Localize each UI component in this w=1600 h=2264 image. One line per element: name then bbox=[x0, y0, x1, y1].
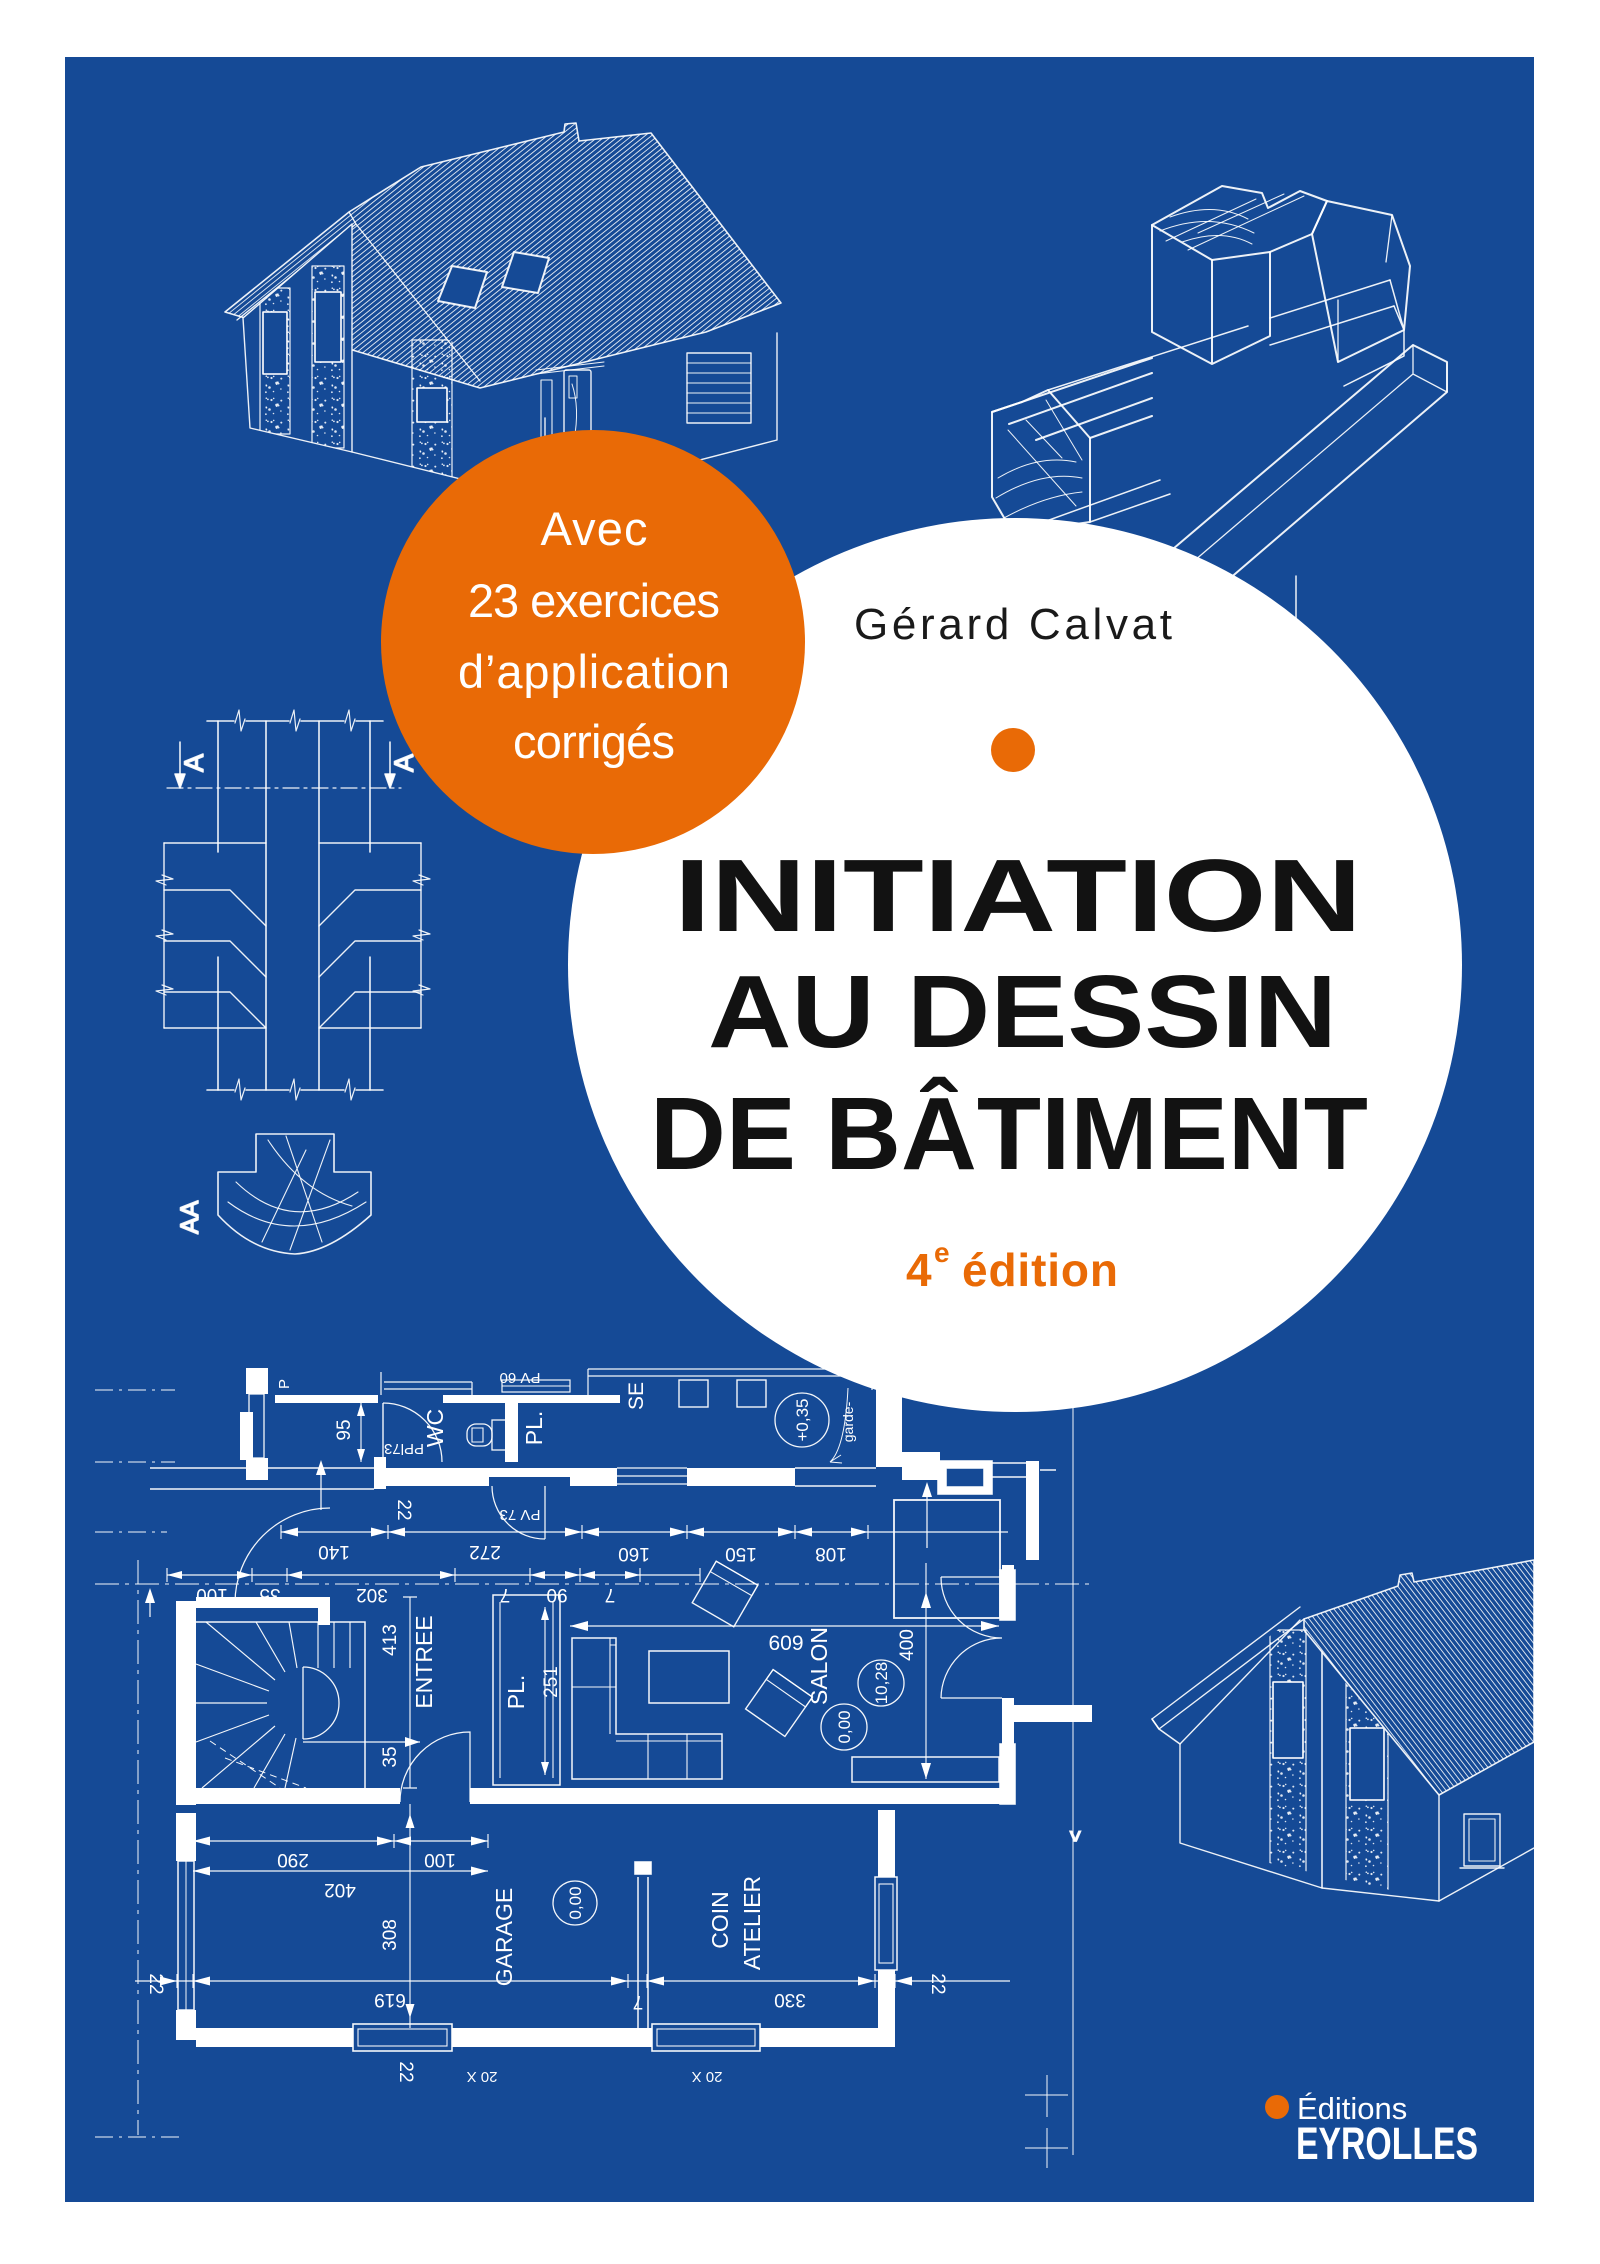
svg-text:35: 35 bbox=[380, 1746, 401, 1767]
svg-text:4: 4 bbox=[906, 1244, 932, 1296]
svg-text:272: 272 bbox=[469, 1541, 501, 1562]
svg-text:20 X: 20 X bbox=[692, 2068, 723, 2085]
svg-text:+0,35: +0,35 bbox=[793, 1398, 812, 1441]
svg-text:290: 290 bbox=[277, 1849, 309, 1870]
svg-text:330: 330 bbox=[774, 1989, 806, 2010]
svg-text:SE: SE bbox=[625, 1382, 648, 1410]
svg-text:P: P bbox=[276, 1379, 293, 1389]
svg-text:7: 7 bbox=[500, 1584, 511, 1605]
svg-text:108: 108 bbox=[815, 1543, 847, 1564]
svg-text:DE BÂTIMENT: DE BÂTIMENT bbox=[650, 1076, 1368, 1191]
svg-text:140: 140 bbox=[318, 1541, 350, 1562]
svg-text:7: 7 bbox=[605, 1584, 616, 1605]
svg-text:corrigés: corrigés bbox=[513, 715, 675, 768]
svg-text:23 exercices: 23 exercices bbox=[468, 574, 720, 627]
svg-text:251: 251 bbox=[541, 1666, 562, 1698]
svg-text:e: e bbox=[934, 1237, 950, 1268]
svg-text:PL.: PL. bbox=[503, 1675, 529, 1710]
svg-text:0,00: 0,00 bbox=[566, 1886, 585, 1919]
svg-text:10,28: 10,28 bbox=[872, 1662, 891, 1705]
svg-text:Gérard Calvat: Gérard Calvat bbox=[854, 600, 1172, 649]
svg-text:20 X: 20 X bbox=[467, 2068, 498, 2085]
svg-text:100: 100 bbox=[196, 1584, 228, 1605]
svg-text:SALON: SALON bbox=[806, 1627, 832, 1705]
svg-text:302: 302 bbox=[356, 1584, 388, 1605]
svg-text:22: 22 bbox=[393, 1499, 414, 1520]
svg-text:400: 400 bbox=[897, 1629, 918, 1661]
svg-text:7: 7 bbox=[633, 1991, 644, 2012]
svg-text:Avec: Avec bbox=[541, 502, 648, 555]
svg-text:<: < bbox=[1065, 1830, 1087, 1842]
svg-text:22: 22 bbox=[145, 1973, 166, 1994]
svg-text:609: 609 bbox=[768, 1632, 803, 1655]
svg-text:619: 619 bbox=[374, 1989, 406, 2010]
svg-text:ENTREE: ENTREE bbox=[411, 1615, 437, 1708]
svg-text:PPl73: PPl73 bbox=[384, 1440, 424, 1457]
svg-text:EYROLLES: EYROLLES bbox=[1296, 2118, 1478, 2169]
svg-text:308: 308 bbox=[380, 1919, 401, 1951]
svg-text:35: 35 bbox=[259, 1584, 280, 1605]
svg-text:PV 73: PV 73 bbox=[500, 1506, 541, 1523]
svg-text:AA: AA bbox=[176, 1200, 204, 1234]
svg-text:A: A bbox=[179, 754, 209, 772]
svg-text:PV 60: PV 60 bbox=[500, 1369, 541, 1386]
svg-text:22: 22 bbox=[927, 1973, 948, 1994]
svg-text:INITIATION: INITIATION bbox=[674, 838, 1362, 953]
svg-text:95: 95 bbox=[334, 1419, 355, 1440]
svg-text:AU DESSIN: AU DESSIN bbox=[708, 954, 1337, 1069]
svg-text:90: 90 bbox=[546, 1584, 567, 1605]
svg-text:150: 150 bbox=[725, 1543, 757, 1564]
svg-text:PL.: PL. bbox=[521, 1411, 547, 1446]
svg-text:0,00: 0,00 bbox=[835, 1710, 854, 1743]
svg-text:402: 402 bbox=[324, 1879, 356, 1900]
svg-text:garde-: garde- bbox=[840, 1401, 856, 1442]
svg-text:413: 413 bbox=[380, 1624, 401, 1656]
svg-text:22: 22 bbox=[395, 2061, 416, 2082]
svg-text:édition: édition bbox=[962, 1244, 1118, 1296]
svg-text:COIN: COIN bbox=[707, 1891, 733, 1949]
svg-text:100: 100 bbox=[424, 1849, 456, 1870]
svg-text:160: 160 bbox=[618, 1543, 650, 1564]
svg-text:d’application: d’application bbox=[458, 645, 730, 698]
svg-text:WC: WC bbox=[422, 1409, 448, 1447]
svg-text:A: A bbox=[389, 754, 419, 772]
svg-text:ATELIER: ATELIER bbox=[739, 1876, 765, 1970]
svg-text:GARAGE: GARAGE bbox=[491, 1888, 517, 1986]
